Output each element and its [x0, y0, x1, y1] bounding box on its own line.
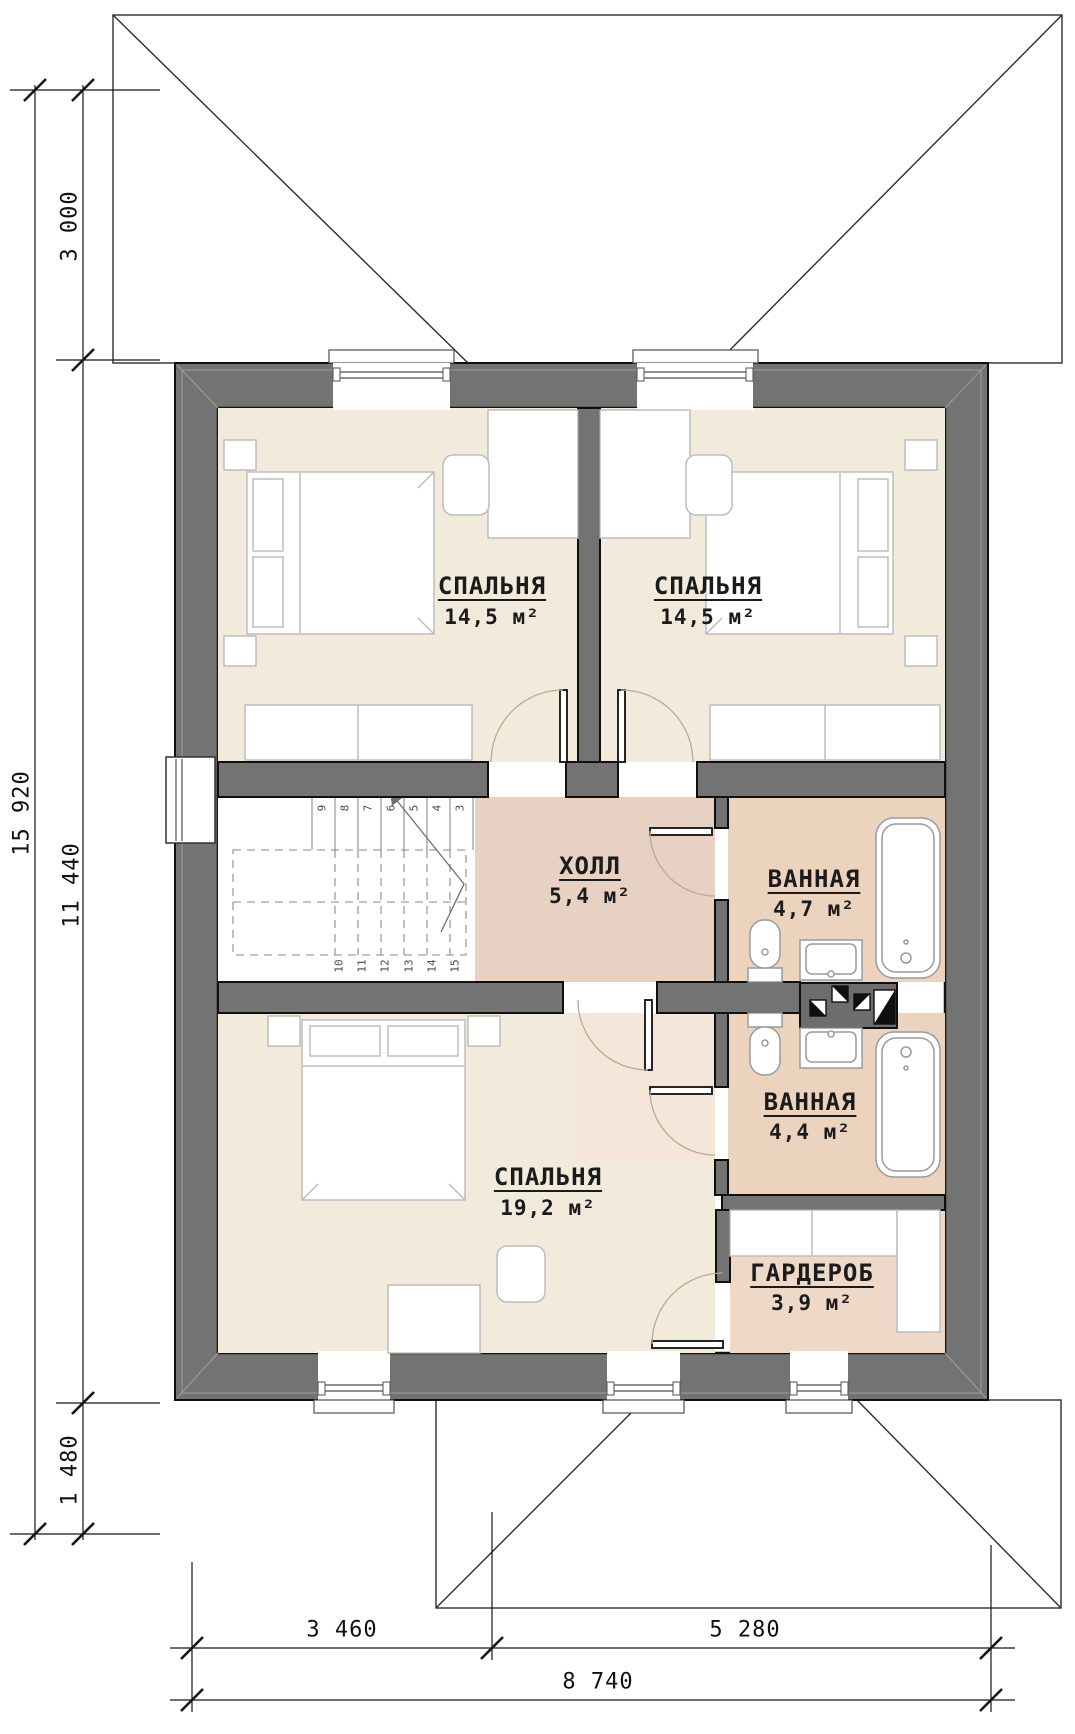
room-area-hall: 5,4 м² [549, 884, 631, 908]
toilet-bowl [750, 920, 780, 968]
stair-step-number: 11 [356, 959, 369, 972]
dimension-label-3460: 3 460 [306, 1618, 377, 1643]
room-label-hall: ХОЛЛ [559, 852, 621, 880]
toilet-tank [748, 1013, 782, 1027]
pillow [253, 557, 283, 627]
stair-step-number: 13 [403, 959, 416, 972]
chair [443, 455, 489, 515]
desk [388, 1285, 480, 1353]
nightstand [905, 440, 937, 470]
pillow [858, 557, 888, 627]
chair [497, 1246, 545, 1302]
left-wall-niche [166, 757, 215, 843]
chair [686, 455, 732, 515]
floor-plan-page: СПАЛЬНЯ 14,5 м² СПАЛЬНЯ 14,5 м² ХОЛЛ 5,4… [0, 0, 1075, 1734]
stair-step-number: 9 [316, 805, 329, 812]
pillow [858, 479, 888, 551]
room-area-bedroom-2: 14,5 м² [660, 605, 756, 629]
stair-step-number: 14 [426, 959, 439, 972]
pillow [253, 479, 283, 551]
stair-step-number: 6 [385, 805, 398, 812]
nightstand [224, 636, 256, 666]
dimension-label-5280: 5 280 [709, 1618, 780, 1643]
room-area-bedroom-3: 19,2 м² [500, 1196, 596, 1220]
stair-step-number: 10 [333, 959, 346, 972]
roof-top-outline [113, 15, 1062, 363]
stair-step-number: 15 [449, 959, 462, 972]
dimension-label-15920: 15 920 [10, 770, 35, 855]
dimension-label-3000: 3 000 [58, 190, 83, 261]
dimension-label-1480: 1 480 [58, 1434, 83, 1505]
desk [600, 410, 690, 538]
stair-step-number: 5 [408, 805, 421, 812]
nightstand [905, 636, 937, 666]
toilet-bowl [750, 1027, 780, 1075]
toilet-tank [748, 968, 782, 982]
room-label-wardrobe: ГАРДЕРОБ [750, 1259, 874, 1287]
wardrobe-shelf [730, 1210, 897, 1256]
room-label-bedroom-2: СПАЛЬНЯ [654, 572, 762, 600]
room-area-bedroom-1: 14,5 м² [444, 605, 540, 629]
stair-step-number: 3 [454, 805, 467, 812]
pillow [310, 1026, 380, 1056]
room-area-bathroom-2: 4,4 м² [769, 1120, 851, 1144]
wardrobe-shelf [897, 1210, 940, 1332]
room-area-wardrobe: 3,9 м² [771, 1291, 853, 1315]
stair-step-number: 4 [431, 805, 444, 812]
dimension-label-8740: 8 740 [562, 1670, 633, 1695]
roof-bottom-outline [436, 1400, 1061, 1608]
floor-plan-drawing [0, 0, 1075, 1734]
room-label-bathroom-1: ВАННАЯ [768, 865, 861, 893]
nightstand [268, 1016, 300, 1046]
dimension-label-11440: 11 440 [60, 842, 85, 927]
vent-shaft [800, 983, 897, 1028]
desk [488, 410, 578, 538]
room-label-bedroom-3: СПАЛЬНЯ [494, 1163, 602, 1191]
room-label-bedroom-1: СПАЛЬНЯ [438, 572, 546, 600]
nightstand [224, 440, 256, 470]
pillow [388, 1026, 458, 1056]
nightstand [468, 1016, 500, 1046]
stair-step-number: 7 [362, 805, 375, 812]
stair-step-number: 8 [339, 805, 352, 812]
room-area-bathroom-1: 4,7 м² [773, 897, 855, 921]
stair-step-number: 12 [379, 959, 392, 972]
room-label-bathroom-2: ВАННАЯ [764, 1088, 857, 1116]
